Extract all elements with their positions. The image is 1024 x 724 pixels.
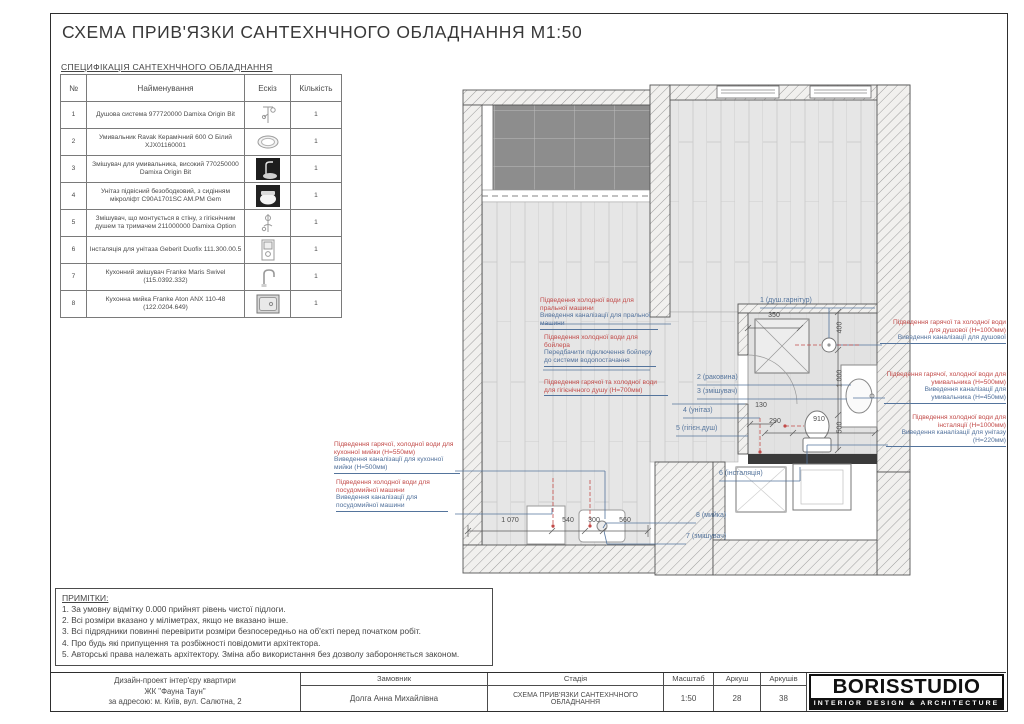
fixture-label-toilet: 4 (унітаз): [683, 407, 713, 414]
annotation-kitchen-sink-supply: Підведення гарячої, холодної води для ку…: [334, 441, 460, 474]
row-qty: 1: [291, 102, 342, 129]
col-header-qty: Кількість: [291, 75, 342, 102]
supply-note: Підведення гарячої та холодної води для …: [880, 319, 1006, 334]
sketch-tall-basin-mixer-icon: [245, 156, 291, 183]
row-qty: 1: [291, 156, 342, 183]
title-block-sheet-cell: Аркуш 28: [713, 673, 760, 711]
fixture-label-basin: 2 (раковина): [697, 374, 738, 381]
bathroom-bottom-wall: [748, 454, 877, 464]
note-item: 1. За умовну відмітку 0.000 прийнят ріве…: [62, 604, 486, 615]
row-name: Змішувач для умивальника, високий 770250…: [87, 156, 245, 183]
supply-note: Підведення холодної води для інсталяції …: [886, 414, 1006, 429]
row-num: 7: [61, 264, 87, 291]
dim-910: 910: [805, 416, 833, 423]
dim-130: 130: [748, 402, 774, 409]
table-row: 8 Кухонна мийка Franke Aton ANX 110-48 (…: [61, 291, 342, 318]
installation-box: [793, 464, 851, 510]
dim-300: 300: [580, 517, 608, 524]
scale-label: Масштаб: [664, 673, 713, 686]
row-num: 4: [61, 183, 87, 210]
washbasin-shape: [846, 379, 872, 413]
dim-1000: 1 000: [837, 363, 844, 395]
row-qty: 1: [291, 264, 342, 291]
sketch-toilet-installation-frame-icon: [245, 237, 291, 264]
dim-400: 400: [837, 316, 844, 340]
stage-value: СХЕМА ПРИВ'ЯЗКИ САНТЕХНЧНОГО ОБЛАДНАННЯ: [488, 686, 663, 711]
annotation-installation: Підведення холодної води для інсталяції …: [886, 414, 1006, 447]
row-num: 2: [61, 129, 87, 156]
table-row: 3 Змішувач для умивальника, високий 7702…: [61, 156, 342, 183]
title-block-sheets-cell: Аркушів 38: [760, 673, 806, 711]
title-block: Дизайн-проект інтер'єру квартири ЖК "Фау…: [50, 672, 1006, 711]
row-name: Інсталяція для унітаза Geberit Duofix 11…: [87, 237, 245, 264]
dim-500: 500: [837, 416, 844, 440]
row-name: Душова система 977720000 Damixa Origin B…: [87, 102, 245, 129]
stage-label: Стадія: [488, 673, 663, 686]
row-name: Кухонний змішувач Franke Maris Swivel (1…: [87, 264, 245, 291]
fixture-label-basin-mixer: 3 (змішувач): [697, 388, 737, 395]
col-header-name: Найменування: [87, 75, 245, 102]
fixture-label-kitchen-mixer: 7 (змішувач): [686, 533, 726, 540]
project-line: ЖК "Фауна Таун": [144, 687, 205, 698]
supply-note: Підведення гарячої та холодної води для …: [544, 379, 668, 394]
sketch-hygienic-shower-mixer-icon: [245, 210, 291, 237]
project-line: за адресою: м. Київ, вул. Салютна, 2: [108, 697, 241, 708]
notes-box: ПРИМІТКИ: 1. За умовну відмітку 0.000 пр…: [55, 588, 493, 666]
kitchen-appliance-box: [527, 506, 565, 544]
spec-section-title: СПЕЦИФІКАЦІЯ САНТЕХНЧНОГО ОБЛАДНАННЯ: [61, 62, 273, 72]
annotation-boiler: Підведення холодної води для бойлера Пер…: [544, 334, 656, 367]
dim-shower-width: 350: [758, 312, 790, 319]
table-row: 2 Умивальник Ravak Керамічний 600 О Біли…: [61, 129, 342, 156]
title-block-scale-cell: Масштаб 1:50: [663, 673, 713, 711]
notes-heading: ПРИМІТКИ:: [62, 593, 486, 603]
sketch-washbasin-icon: [245, 129, 291, 156]
drain-note: Виведення каналізації для унітазу (Н=220…: [886, 429, 1006, 444]
sketch-kitchen-mixer-icon: [245, 264, 291, 291]
spec-table: № Найменування Ескіз Кількість 1 Душова …: [60, 74, 342, 318]
scale-value: 1:50: [664, 686, 713, 711]
row-num: 3: [61, 156, 87, 183]
table-row: 6 Інсталяція для унітаза Geberit Duofix …: [61, 237, 342, 264]
note-item: 2. Всі розміри вказано у міліметрах, якщ…: [62, 615, 486, 626]
sheets-total: 38: [761, 686, 806, 711]
fixture-label-kitchen-sink: 8 (мийка): [696, 512, 726, 519]
logo-name: BORISSTUDIO: [811, 676, 1002, 698]
fixture-label-hygienic-shower: 5 (гігієн.душ): [676, 425, 717, 432]
supply-note: Підведення гарячої, холодної води для ум…: [884, 371, 1006, 386]
title-block-project-cell: Дизайн-проект інтер'єру квартири ЖК "Фау…: [50, 673, 300, 711]
annotation-hygienic-shower: Підведення гарячої та холодної води для …: [544, 379, 668, 396]
row-num: 1: [61, 102, 87, 129]
col-header-num: №: [61, 75, 87, 102]
spec-header-row: № Найменування Ескіз Кількість: [61, 75, 342, 102]
note-item: 3. Всі підрядники повинні перевірити роз…: [62, 626, 486, 637]
sheet-number: 28: [714, 686, 760, 711]
customer-label: Замовник: [301, 673, 487, 686]
title-block-logo-cell: BORISSTUDIO INTERIOR DESIGN & ARCHITECTU…: [806, 673, 1006, 711]
sheet-label: Аркуш: [714, 673, 760, 686]
table-row: 4 Унітаз підвісний безободковий, з сидін…: [61, 183, 342, 210]
dim-1070: 1 070: [494, 517, 526, 524]
row-qty: 1: [291, 183, 342, 210]
sketch-shower-system-icon: [245, 102, 291, 129]
borisstudio-logo: BORISSTUDIO INTERIOR DESIGN & ARCHITECTU…: [809, 674, 1004, 710]
annotation-washing-machine: Підведення холодної води для пральної ма…: [540, 297, 658, 330]
dim-290: 290: [762, 418, 788, 425]
note-item: 5. Авторські права належать архітектору.…: [62, 649, 486, 660]
row-qty: 1: [291, 291, 342, 318]
row-num: 8: [61, 291, 87, 318]
row-name: Унітаз підвісний безободковий, з сидіння…: [87, 183, 245, 210]
fixture-label-installation: 6 (інсталяція): [719, 470, 763, 477]
row-name: Кухонна мийка Franke Aton ANX 110-48 (12…: [87, 291, 245, 318]
project-line: Дизайн-проект інтер'єру квартири: [114, 676, 236, 687]
supply-note: Підведення холодної води для пральної ма…: [540, 297, 658, 312]
row-num: 5: [61, 210, 87, 237]
sheets-label: Аркушів: [761, 673, 806, 686]
customer-name: Долга Анна Михайлівна: [301, 686, 487, 711]
annotation-shower: Підведення гарячої та холодної води для …: [880, 319, 1006, 344]
supply-note: Підведення холодної води для бойлера: [544, 334, 656, 349]
row-qty: 1: [291, 210, 342, 237]
drain-note: Передбачити підключення бойлеру до систе…: [544, 349, 656, 364]
annotation-washbasin: Підведення гарячої, холодної води для ум…: [884, 371, 1006, 404]
page-title: СХЕМА ПРИВ'ЯЗКИ САНТЕХНЧНОГО ОБЛАДНАННЯ …: [62, 22, 582, 43]
drain-note: Виведення каналізації для посудомийної м…: [336, 494, 448, 509]
drain-note: Виведення каналізації для кухонної мийки…: [334, 456, 460, 471]
table-row: 7 Кухонний змішувач Franke Maris Swivel …: [61, 264, 342, 291]
drawing-sheet: СХЕМА ПРИВ'ЯЗКИ САНТЕХНЧНОГО ОБЛАДНАННЯ …: [0, 0, 1024, 724]
dim-540: 540: [554, 517, 582, 524]
table-row: 1 Душова система 977720000 Damixa Origin…: [61, 102, 342, 129]
title-block-stage-cell: Стадія СХЕМА ПРИВ'ЯЗКИ САНТЕХНЧНОГО ОБЛА…: [487, 673, 663, 711]
row-name: Умивальник Ravak Керамічний 600 О Білий …: [87, 129, 245, 156]
row-name: Змішувач, що монтується в стіну, з гігіє…: [87, 210, 245, 237]
sketch-wall-hung-toilet-icon: [245, 183, 291, 210]
row-num: 6: [61, 237, 87, 264]
dim-560: 560: [611, 517, 639, 524]
drain-note: Виведення каналізації для пральної машин…: [540, 312, 658, 327]
sketch-kitchen-sink-icon: [245, 291, 291, 318]
annotation-dishwasher: Підведення холодної води для посудомийно…: [336, 479, 448, 512]
logo-tagline: INTERIOR DESIGN & ARCHITECTURE: [811, 698, 1002, 708]
fixture-label-shower-set: 1 (душ.гарнітур): [760, 297, 812, 304]
supply-note: Підведення гарячої, холодної води для ку…: [334, 441, 460, 456]
row-qty: 1: [291, 237, 342, 264]
supply-note: Підведення холодної води для посудомийно…: [336, 479, 448, 494]
drain-note: Виведення каналізації для душової: [880, 334, 1006, 342]
table-row: 5 Змішувач, що монтується в стіну, з гіг…: [61, 210, 342, 237]
row-qty: 1: [291, 129, 342, 156]
title-block-customer-cell: Замовник Долга Анна Михайлівна: [300, 673, 487, 711]
note-item: 4. Про будь які припущення та розбіжност…: [62, 638, 486, 649]
col-header-sketch: Ескіз: [245, 75, 291, 102]
drain-note: Виведення каналізації для умивальника (Н…: [884, 386, 1006, 401]
